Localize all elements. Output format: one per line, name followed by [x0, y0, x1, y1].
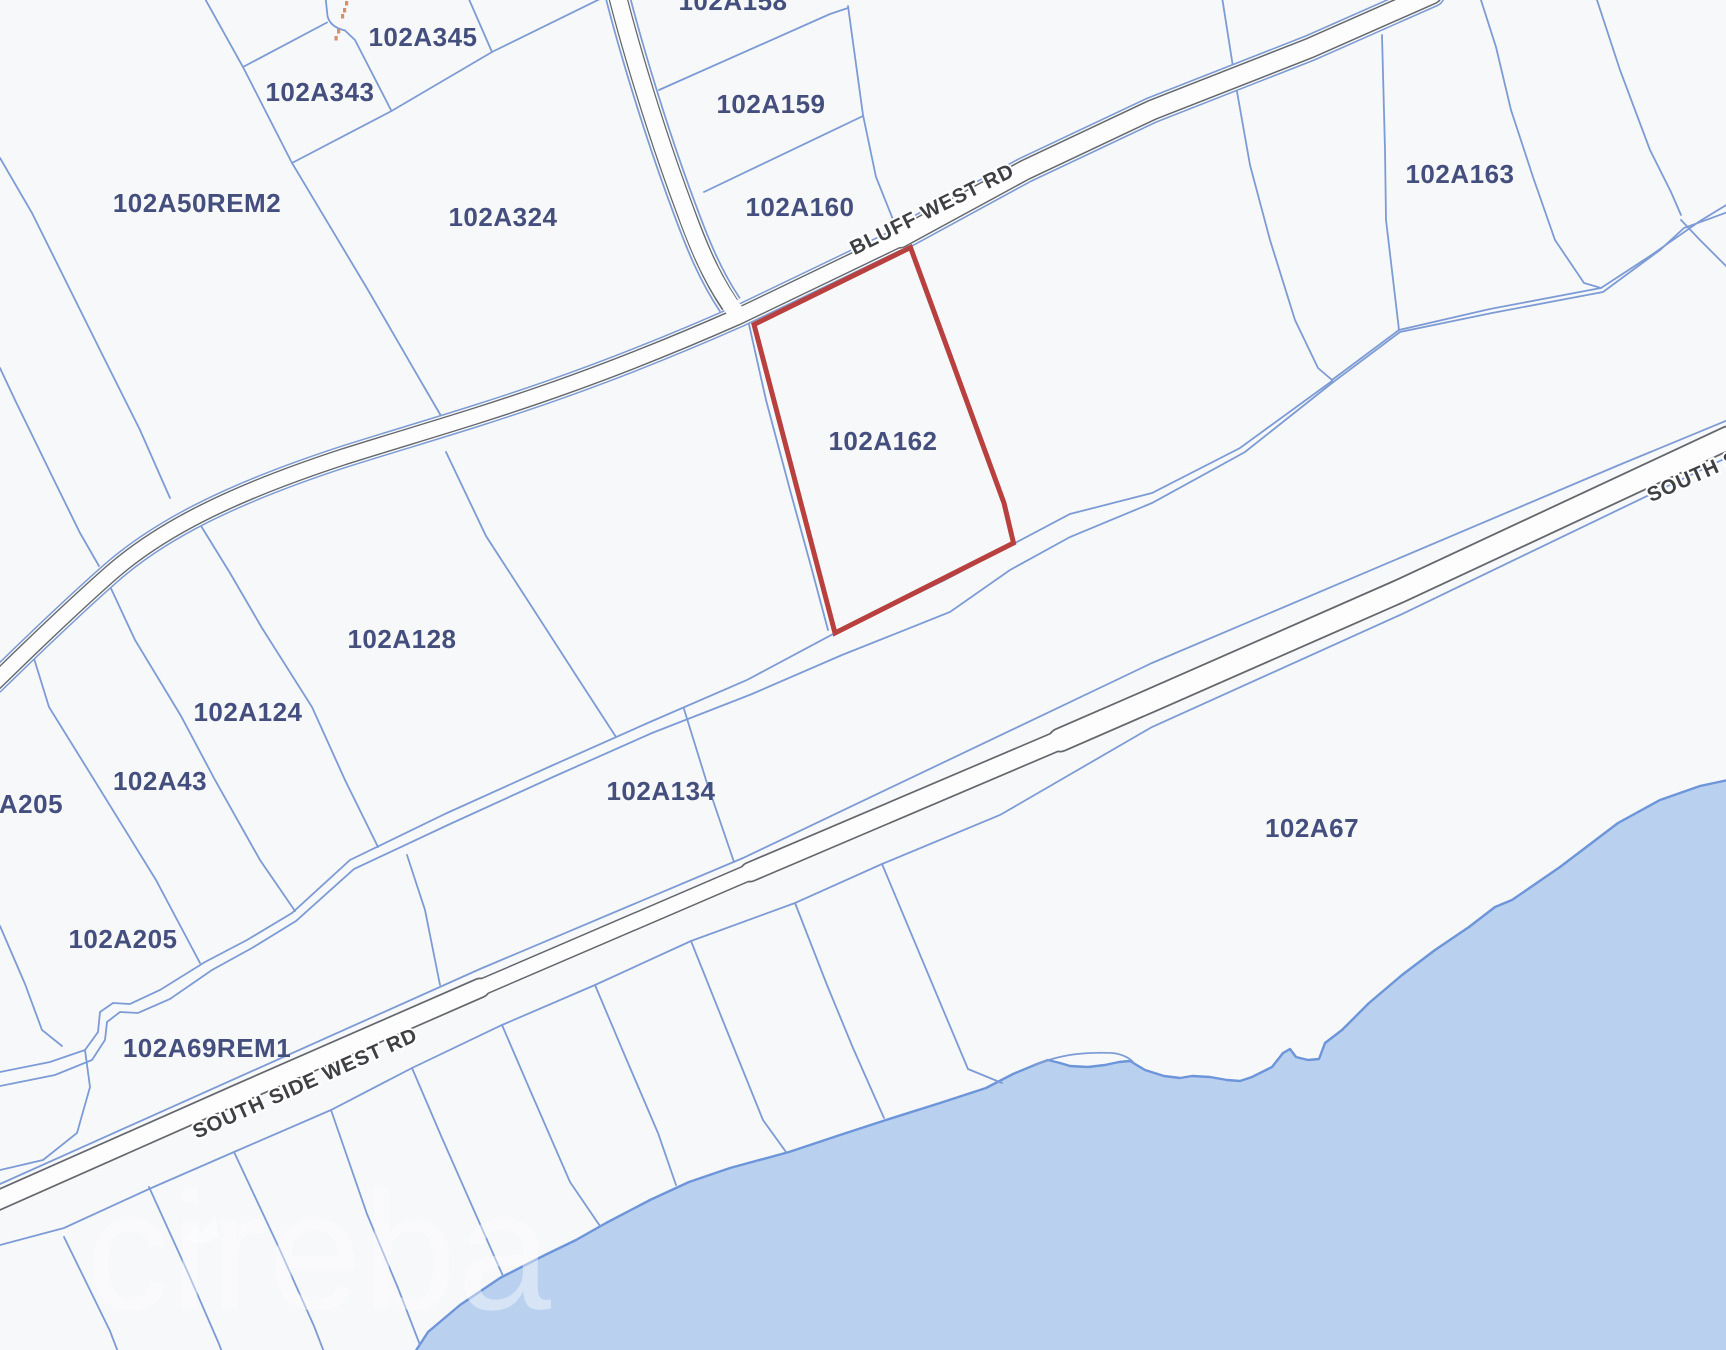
svg-text:102A205: 102A205	[0, 789, 63, 819]
svg-text:102A158: 102A158	[678, 0, 787, 16]
svg-text:102A162: 102A162	[828, 426, 937, 456]
svg-text:102A128: 102A128	[347, 624, 456, 654]
svg-text:102A160: 102A160	[745, 192, 854, 222]
svg-text:102A124: 102A124	[193, 697, 302, 727]
svg-text:102A67: 102A67	[1265, 813, 1359, 843]
svg-text:102A134: 102A134	[606, 776, 715, 806]
svg-text:102A205: 102A205	[68, 924, 177, 954]
svg-text:102A69REM1: 102A69REM1	[123, 1033, 291, 1063]
svg-text:102A43: 102A43	[113, 766, 207, 796]
svg-text:102A159: 102A159	[716, 89, 825, 119]
svg-text:102A163: 102A163	[1405, 159, 1514, 189]
svg-text:102A343: 102A343	[265, 77, 374, 107]
svg-text:102A345: 102A345	[368, 22, 477, 52]
svg-text:cireba: cireba	[86, 1159, 553, 1345]
svg-text:102A324: 102A324	[448, 202, 557, 232]
svg-text:102A50REM2: 102A50REM2	[113, 188, 281, 218]
